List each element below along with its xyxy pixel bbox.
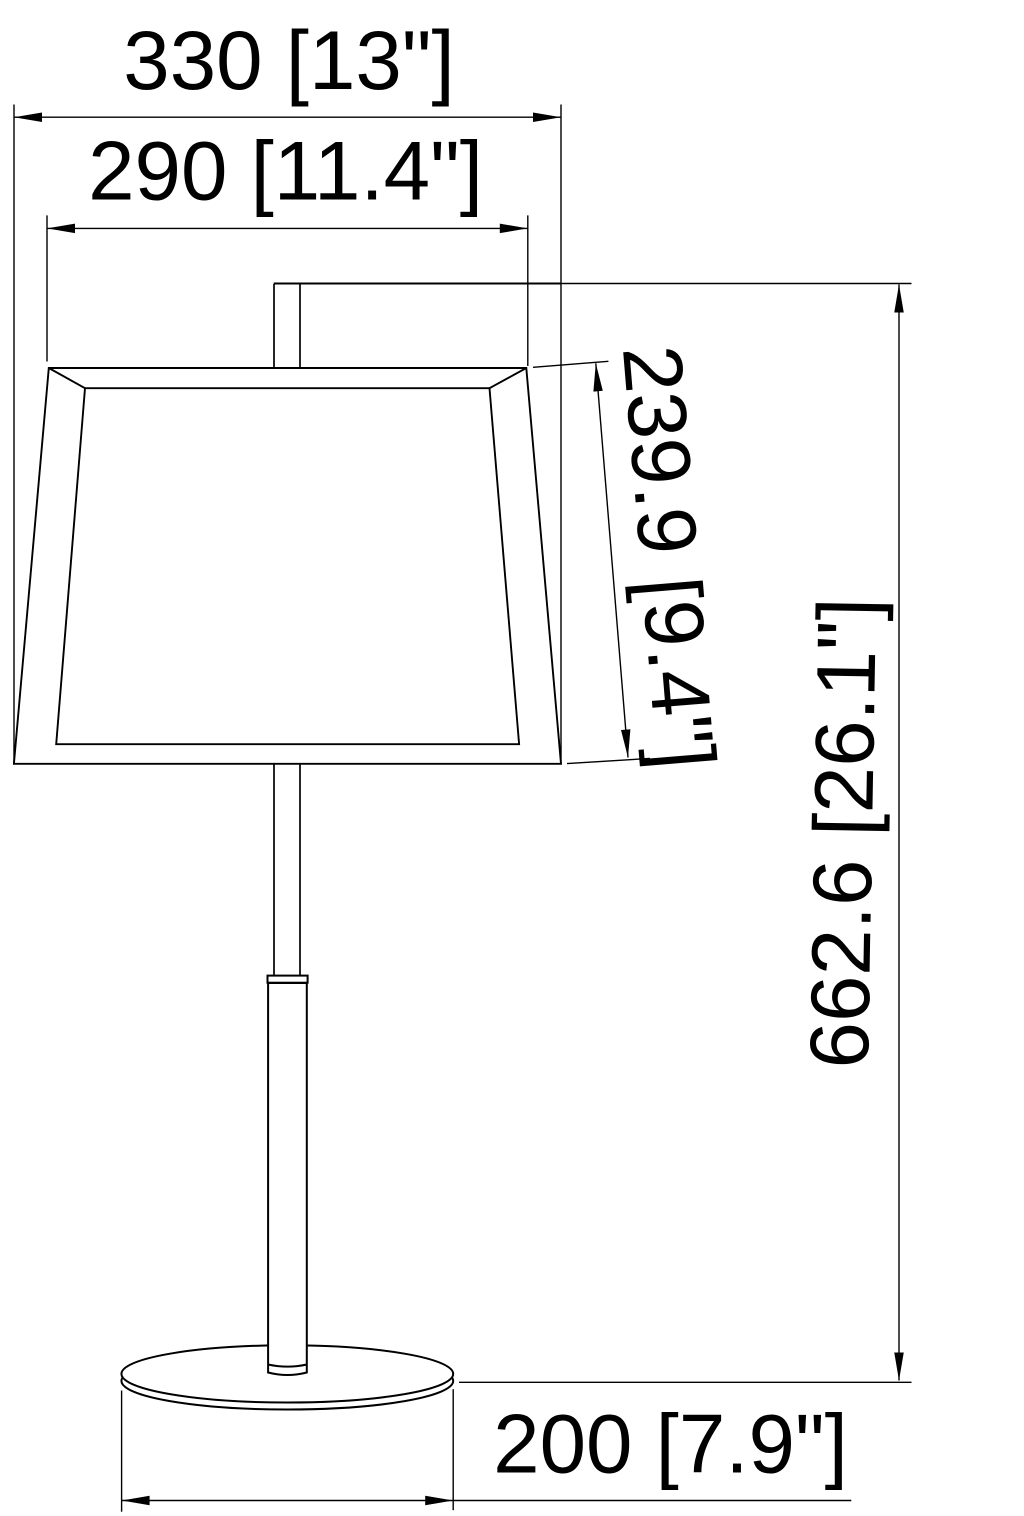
svg-text:330 [13"]: 330 [13"] bbox=[123, 13, 454, 107]
svg-text:290 [11.4"]: 290 [11.4"] bbox=[88, 124, 483, 218]
svg-text:662.6 [26.1"]: 662.6 [26.1"] bbox=[792, 597, 894, 1069]
svg-text:200 [7.9"]: 200 [7.9"] bbox=[493, 1397, 848, 1491]
